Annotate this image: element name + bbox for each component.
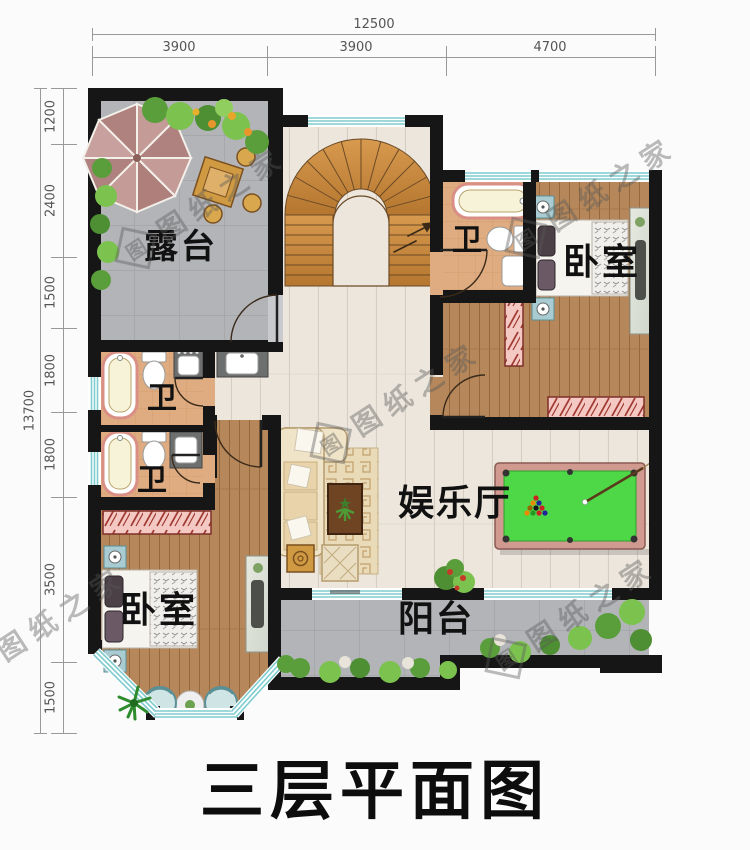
dresser-bottom-bedroom xyxy=(103,511,211,534)
dim-left-seg-3: 1500 xyxy=(45,261,58,325)
dim-left-total: 13700 xyxy=(24,375,37,447)
sink-low xyxy=(170,432,202,468)
floor-plan-page: 露台 卫 卧室 卫 卫 卧室 娱乐厅 阳台 图 图纸之家 图 图纸之家 图 图纸… xyxy=(0,0,750,850)
toilet-top xyxy=(487,226,526,252)
room-label-bath-low: 卫 xyxy=(137,466,167,496)
room-label-bedroom-bottom: 卧室 xyxy=(120,593,198,629)
side-table xyxy=(287,545,314,572)
window-bath-low xyxy=(88,452,101,485)
cabinet-hatched-vertical xyxy=(505,292,523,366)
dim-top-seg-1: 3900 xyxy=(112,41,246,54)
room-label-balcony: 阳台 xyxy=(398,602,474,638)
dim-top-seg-3: 4700 xyxy=(483,41,617,54)
room-label-terrace: 露台 xyxy=(144,230,218,264)
nightstand-bottom-1 xyxy=(104,546,126,568)
dim-top-seg-2: 3900 xyxy=(289,41,423,54)
window-stair-top xyxy=(308,115,405,127)
stair-well xyxy=(333,196,389,286)
window-bath-top xyxy=(465,170,531,182)
window-bath-mid xyxy=(88,377,101,410)
bathtub-top xyxy=(453,184,533,218)
plan-title: 三层平面图 xyxy=(0,760,750,824)
room-label-bath-top: 卫 xyxy=(452,226,482,256)
dim-left-seg-4: 1800 xyxy=(45,339,58,403)
window-bedroom-top xyxy=(539,170,649,182)
dim-left-seg-5: 1800 xyxy=(45,423,58,487)
dim-left-seg-7: 1500 xyxy=(45,666,58,730)
dim-left-seg-1: 1200 xyxy=(45,85,58,149)
sofa-set xyxy=(277,428,378,581)
room-label-bath-mid: 卫 xyxy=(147,384,177,414)
coffee-table xyxy=(328,484,362,534)
window-balcony-1 xyxy=(312,588,402,600)
sink-top xyxy=(502,256,526,286)
dim-top-total: 12500 xyxy=(92,18,656,31)
dim-left-seg-2: 2400 xyxy=(45,169,58,233)
hall-vanity xyxy=(217,350,268,377)
ottoman xyxy=(322,545,358,581)
bedroom-corner-plant xyxy=(277,655,295,673)
wardrobe-bottom xyxy=(246,556,270,652)
dresser-top-bedroom xyxy=(548,397,644,420)
dim-left-seg-6: 3500 xyxy=(45,548,58,612)
floor-plan-drawing xyxy=(0,0,750,850)
bathtub-low xyxy=(103,432,137,495)
washstand-mid xyxy=(174,350,203,378)
pool-table xyxy=(495,463,650,555)
room-label-hall: 娱乐厅 xyxy=(398,486,512,522)
bathtub-mid xyxy=(103,352,137,418)
room-label-bedroom-top: 卧室 xyxy=(563,245,641,281)
window-balcony-2 xyxy=(484,588,612,600)
staircase xyxy=(285,139,437,286)
